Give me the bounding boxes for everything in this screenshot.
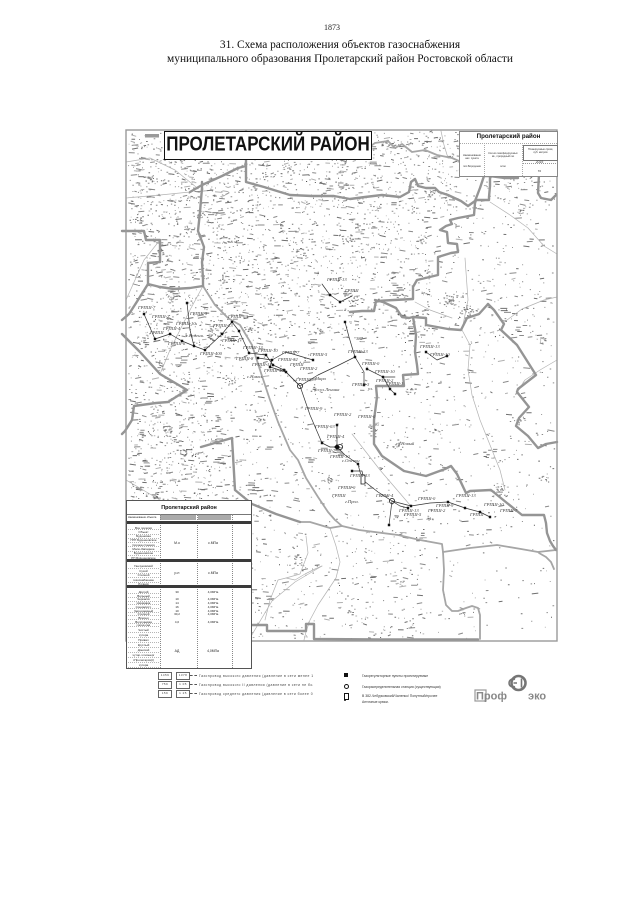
svg-text:ГРПШ: ГРПШ [469, 512, 484, 517]
svg-text:ГРПШ-10: ГРПШ-10 [257, 348, 278, 353]
svg-text:ГРПШ-5: ГРПШ-5 [403, 512, 422, 517]
svg-text:ГРПШ-6: ГРПШ-6 [167, 341, 186, 346]
svg-text:ГРПШ-13: ГРПШ-13 [455, 493, 476, 498]
svg-text:ГРПШ-3: ГРПШ-3 [351, 382, 370, 387]
svg-text:ГРПШ-10: ГРПШ-10 [483, 502, 504, 507]
svg-text:ГРПШ-0: ГРПШ-0 [361, 361, 380, 366]
svg-text:ГРПШ-400: ГРПШ-400 [263, 368, 287, 373]
svg-text:ГРПШ-9: ГРПШ-9 [304, 406, 323, 411]
svg-text:Проф: Проф [476, 691, 507, 703]
svg-text:ГРПШ-400: ГРПШ-400 [199, 351, 223, 356]
svg-text:ул.Мира: ул.Мира [309, 376, 326, 381]
svg-text:г.Прол.: г.Прол. [345, 499, 359, 504]
svg-text:ГРПШ-4: ГРПШ-4 [162, 326, 181, 331]
svg-text:ГРПШ-5: ГРПШ-5 [309, 352, 328, 357]
svg-text:ГРПШ-03: ГРПШ-03 [227, 314, 248, 319]
svg-text:ГРПШ-2: ГРПШ-2 [299, 366, 318, 371]
svg-text:ГРПШ-3: ГРПШ-3 [189, 311, 208, 316]
svg-text:ГРПШ-13: ГРПШ-13 [419, 344, 440, 349]
svg-text:ГРПШ: ГРПШ [331, 493, 346, 498]
svg-text:эко: эко [528, 691, 546, 703]
svg-text:ГРПШ-03: ГРПШ-03 [314, 424, 335, 429]
svg-text:ГРПШ: ГРПШ [344, 288, 359, 293]
svg-text:ГРПШ-7: ГРПШ-7 [137, 305, 156, 310]
svg-text:ГРПШ-0: ГРПШ-0 [337, 485, 356, 490]
svg-text:ГРПШ-0: ГРПШ-0 [417, 496, 436, 501]
svg-text:ГРПШ-7: ГРПШ-7 [317, 448, 336, 453]
svg-text:ГРПШ-4: ГРПШ-4 [375, 493, 394, 498]
svg-text:ГРПШ-7: ГРПШ-7 [499, 508, 518, 513]
svg-text:ГРПШ-8: ГРПШ-8 [235, 356, 254, 361]
svg-text:ГРПШ: ГРПШ [149, 330, 164, 335]
svg-text:ГРПШ-2: ГРПШ-2 [427, 508, 446, 513]
svg-text:ГРПШ-2: ГРПШ-2 [333, 412, 352, 417]
svg-text:ГРПШ-13: ГРПШ-13 [347, 349, 368, 354]
svg-text:ГРПШ-13: ГРПШ-13 [349, 473, 370, 478]
svg-text:с.Буденн.: с.Буденн. [186, 333, 204, 338]
svg-text:с.Опенки: с.Опенки [342, 458, 360, 463]
svg-text:ГРПШ-2: ГРПШ-2 [151, 314, 170, 319]
svg-text:ГРПШ-10: ГРПШ-10 [429, 352, 450, 357]
svg-text:ГРПШ-12: ГРПШ-12 [251, 362, 272, 367]
svg-text:ГРПШ-7: ГРПШ-7 [281, 350, 300, 355]
svg-text:ГРПШ-10: ГРПШ-10 [374, 369, 395, 374]
svg-text:ГРПШ-1: ГРПШ-1 [221, 338, 239, 343]
svg-text:с.Никол.: с.Никол. [247, 374, 263, 379]
svg-text:ГРПШ-0: ГРПШ-0 [357, 414, 376, 419]
svg-text:ул.Ленина: ул.Ленина [319, 387, 340, 392]
svg-text:ГРПШ-2: ГРПШ-2 [375, 378, 394, 383]
svg-text:ГРПШ-13: ГРПШ-13 [212, 323, 233, 328]
svg-text:х.Новый: х.Новый [397, 441, 415, 446]
svg-text:ГРПШ-13: ГРПШ-13 [326, 277, 347, 282]
svg-text:387: 387 [356, 336, 364, 341]
svg-text:ГРПШ-4: ГРПШ-4 [326, 434, 345, 439]
